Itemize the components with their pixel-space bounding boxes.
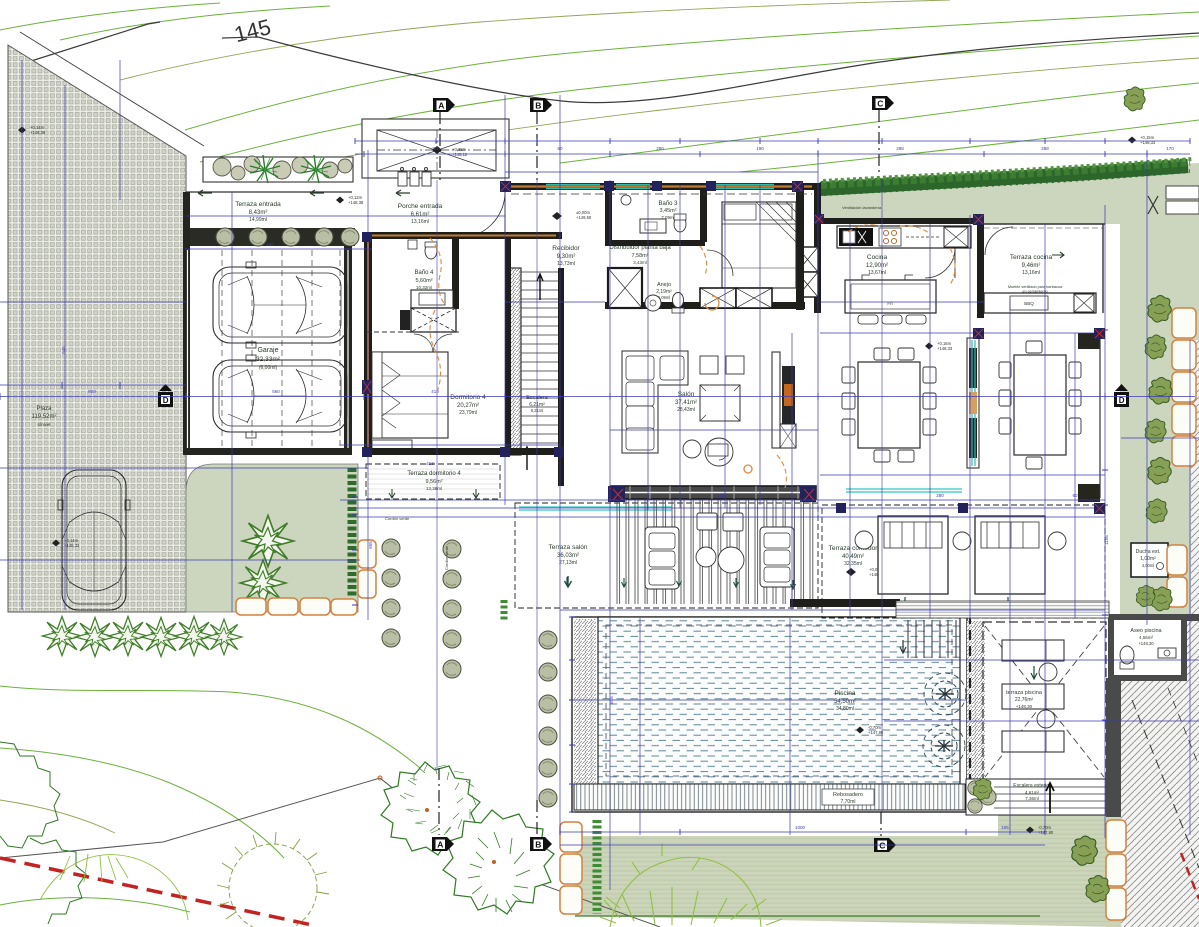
svg-text:340: 340 xyxy=(432,146,440,151)
svg-text:7,36ml: 7,36ml xyxy=(1025,796,1039,801)
svg-text:Garaje: Garaje xyxy=(257,347,278,354)
svg-text:Ducha ext.: Ducha ext. xyxy=(1136,549,1161,555)
svg-text:s/nivel: s/nivel xyxy=(38,422,51,427)
svg-text:Cordón verde: Cordón verde xyxy=(385,516,410,521)
svg-text:8,43m²: 8,43m² xyxy=(249,210,268,216)
svg-text:60: 60 xyxy=(557,146,563,151)
svg-text:6,61m²: 6,61m² xyxy=(411,212,430,218)
svg-text:Anejo: Anejo xyxy=(657,282,671,288)
svg-text:13,67ml: 13,67ml xyxy=(868,270,886,276)
svg-text:7,70ml: 7,70ml xyxy=(840,799,855,805)
svg-text:A: A xyxy=(437,840,443,850)
svg-text:22,76m²: 22,76m² xyxy=(1015,697,1034,703)
svg-text:Baño 4: Baño 4 xyxy=(414,270,434,276)
svg-text:560: 560 xyxy=(272,389,280,394)
svg-text:3,43ml: 3,43ml xyxy=(633,260,647,265)
svg-text:816: 816 xyxy=(609,696,614,704)
svg-text:10,32ml: 10,32ml xyxy=(416,285,432,290)
svg-text:4,00ml: 4,00ml xyxy=(1142,563,1155,568)
svg-text:Mueble ventilado para barbacoa: Mueble ventilado para barbacoa xyxy=(1008,285,1063,289)
svg-text:Plaza: Plaza xyxy=(36,406,52,412)
svg-text:+148,33: +148,33 xyxy=(64,543,80,548)
svg-text:+148,30: +148,30 xyxy=(1016,704,1033,709)
svg-text:Cocina: Cocina xyxy=(867,254,888,261)
svg-text:545: 545 xyxy=(61,346,66,354)
svg-text:Ventilación lavandería: Ventilación lavandería xyxy=(842,205,882,210)
svg-text:Escalera exterior: Escalera exterior xyxy=(1013,783,1051,789)
svg-text:288: 288 xyxy=(1041,146,1049,151)
svg-text:+145,12: +145,12 xyxy=(452,152,468,157)
svg-text:Escalera: Escalera xyxy=(526,395,548,401)
svg-text:terraza piscina: terraza piscina xyxy=(1006,690,1043,696)
svg-text:9,56m²: 9,56m² xyxy=(425,479,442,485)
svg-text:Terraza salón: Terraza salón xyxy=(548,544,587,551)
svg-text:D: D xyxy=(1119,396,1125,405)
svg-text:413: 413 xyxy=(426,461,434,466)
svg-text:488: 488 xyxy=(716,493,724,498)
svg-text:+148,38: +148,38 xyxy=(348,200,364,205)
svg-text:60: 60 xyxy=(1072,493,1078,498)
svg-text:13,16ml: 13,16ml xyxy=(411,219,429,225)
svg-text:655: 655 xyxy=(368,541,373,549)
svg-text:1,00m²: 1,00m² xyxy=(1140,556,1156,562)
svg-text:3,45m²: 3,45m² xyxy=(659,208,676,214)
svg-text:13,16ml: 13,16ml xyxy=(1022,270,1040,276)
svg-text:1105: 1105 xyxy=(1104,535,1109,545)
svg-text:14,99ml: 14,99ml xyxy=(249,217,267,223)
svg-text:105: 105 xyxy=(1001,825,1009,830)
svg-text:Terraza dormitorio 4: Terraza dormitorio 4 xyxy=(407,471,461,477)
svg-text:Terraza cocina: Terraza cocina xyxy=(1010,254,1053,261)
svg-text:27,13ml: 27,13ml xyxy=(559,560,577,566)
svg-text:Baño 3: Baño 3 xyxy=(658,201,678,207)
svg-text:+149,50: +149,50 xyxy=(576,215,592,220)
svg-text:+148,33: +148,33 xyxy=(937,346,953,351)
svg-text:+147,80: +147,80 xyxy=(1038,830,1054,835)
svg-text:C: C xyxy=(877,99,883,109)
svg-text:4,56m²: 4,56m² xyxy=(1139,635,1154,640)
svg-text:5,60m²: 5,60m² xyxy=(415,278,432,284)
svg-text:C: C xyxy=(879,841,885,851)
svg-text:B: B xyxy=(535,101,541,111)
svg-text:A: A xyxy=(438,101,444,111)
svg-text:40,49m²: 40,49m² xyxy=(842,554,864,560)
svg-text:480: 480 xyxy=(266,242,274,247)
svg-text:BBQ: BBQ xyxy=(1024,301,1034,306)
svg-text:800: 800 xyxy=(88,389,96,394)
svg-text:Piscina: Piscina xyxy=(835,690,856,697)
svg-text:20,27m²: 20,27m² xyxy=(457,403,479,409)
svg-text:280: 280 xyxy=(656,146,664,151)
svg-text:190: 190 xyxy=(756,146,764,151)
svg-text:Rebosadero: Rebosadero xyxy=(833,792,863,798)
svg-text:Porche entrada: Porche entrada xyxy=(398,203,443,210)
svg-text:9,46m²: 9,46m² xyxy=(1022,263,1041,269)
svg-text:Cordón verde: Cordón verde xyxy=(444,545,449,570)
svg-text:170: 170 xyxy=(1166,146,1174,151)
svg-text:280: 280 xyxy=(936,493,944,498)
svg-text:1000: 1000 xyxy=(795,825,806,830)
svg-text:Aseo piscina: Aseo piscina xyxy=(1130,628,1162,634)
svg-text:13,38ml: 13,38ml xyxy=(426,486,442,491)
svg-text:Dormitorio 4: Dormitorio 4 xyxy=(450,394,486,401)
svg-text:37,41m²: 37,41m² xyxy=(675,400,697,406)
svg-text:9,30m²: 9,30m² xyxy=(557,254,576,260)
svg-text:12,90m²: 12,90m² xyxy=(866,263,888,269)
svg-text:D: D xyxy=(163,396,169,405)
svg-text:Recibidor: Recibidor xyxy=(552,245,580,252)
svg-text:32,35ml: 32,35ml xyxy=(844,561,862,567)
svg-text:Terraza entrada: Terraza entrada xyxy=(235,201,281,208)
svg-text:+148,30: +148,30 xyxy=(1138,641,1154,646)
svg-text:4,61m²: 4,61m² xyxy=(1025,790,1040,795)
svg-text:34,80ml: 34,80ml xyxy=(836,706,854,712)
svg-text:119,52m²: 119,52m² xyxy=(32,414,57,420)
svg-text:7,58m²: 7,58m² xyxy=(631,253,648,259)
svg-text:288: 288 xyxy=(896,146,904,151)
svg-text:+148,35: +148,35 xyxy=(30,130,46,135)
svg-text:B: B xyxy=(535,840,541,850)
svg-text:+147,80: +147,80 xyxy=(868,730,884,735)
svg-text:23,79ml: 23,79ml xyxy=(459,410,477,416)
